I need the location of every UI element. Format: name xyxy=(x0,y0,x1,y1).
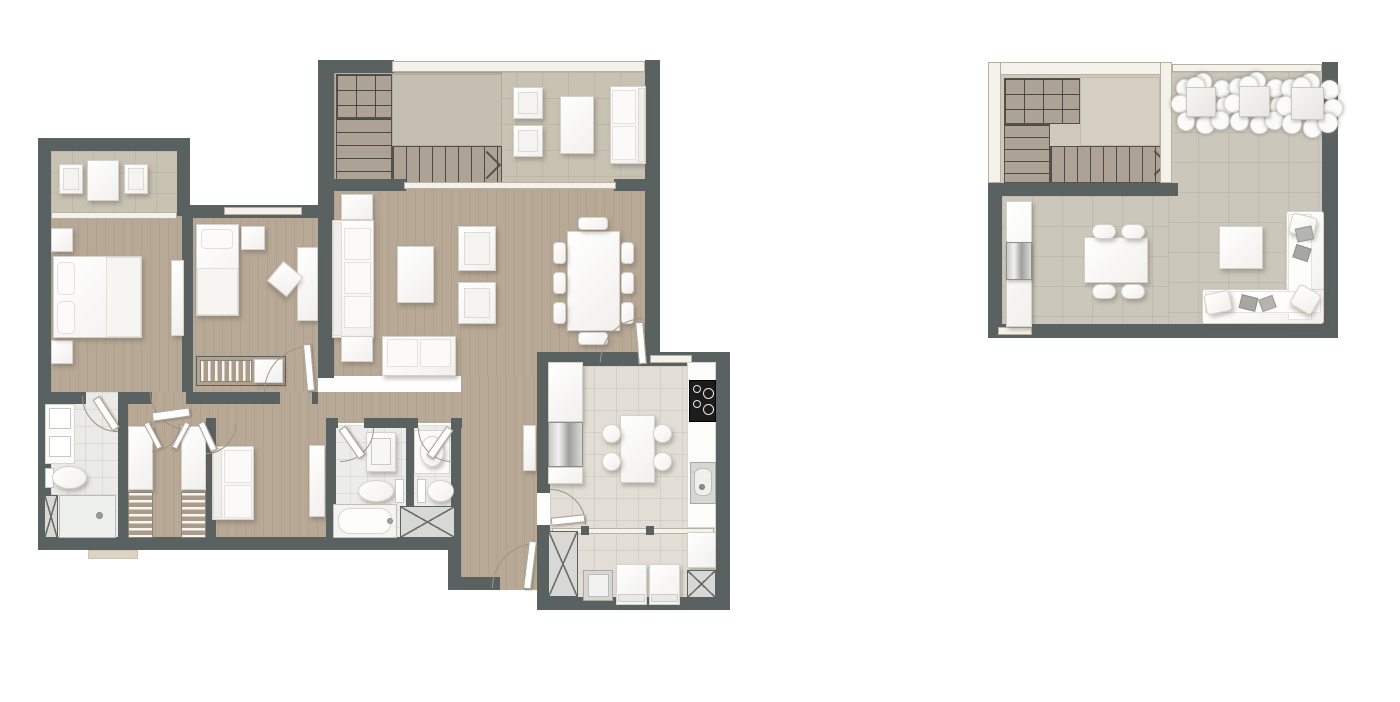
stair-landing xyxy=(1080,77,1160,146)
wall xyxy=(988,324,1338,338)
planter-box xyxy=(1239,86,1270,117)
wall xyxy=(988,183,1178,196)
grill xyxy=(1006,242,1032,280)
stair-upper-flight xyxy=(1004,78,1080,124)
stair-mid-flight xyxy=(1004,124,1050,183)
stairwell-wall xyxy=(1160,62,1172,183)
planter-plant xyxy=(1231,78,1278,125)
stairwell-wall xyxy=(988,62,1172,75)
planter-plant xyxy=(1283,79,1332,128)
planter-plant xyxy=(1178,79,1224,125)
terrace-window xyxy=(998,327,1032,335)
wall xyxy=(988,190,1002,338)
terrace-chair xyxy=(1121,224,1145,239)
floor-plan-canvas xyxy=(0,0,1400,702)
terrace-coffee-table xyxy=(1219,226,1263,269)
terrace-chair xyxy=(1121,284,1145,299)
terrace-chair xyxy=(1092,224,1116,239)
terrace-parapet xyxy=(1172,64,1322,72)
planter-box xyxy=(1291,87,1323,119)
upper-floor-plan xyxy=(0,0,1400,702)
planter-box xyxy=(1186,87,1216,117)
stairwell-wall xyxy=(988,62,1001,183)
terrace-dining-table xyxy=(1084,237,1148,283)
terrace-chair xyxy=(1092,284,1116,299)
